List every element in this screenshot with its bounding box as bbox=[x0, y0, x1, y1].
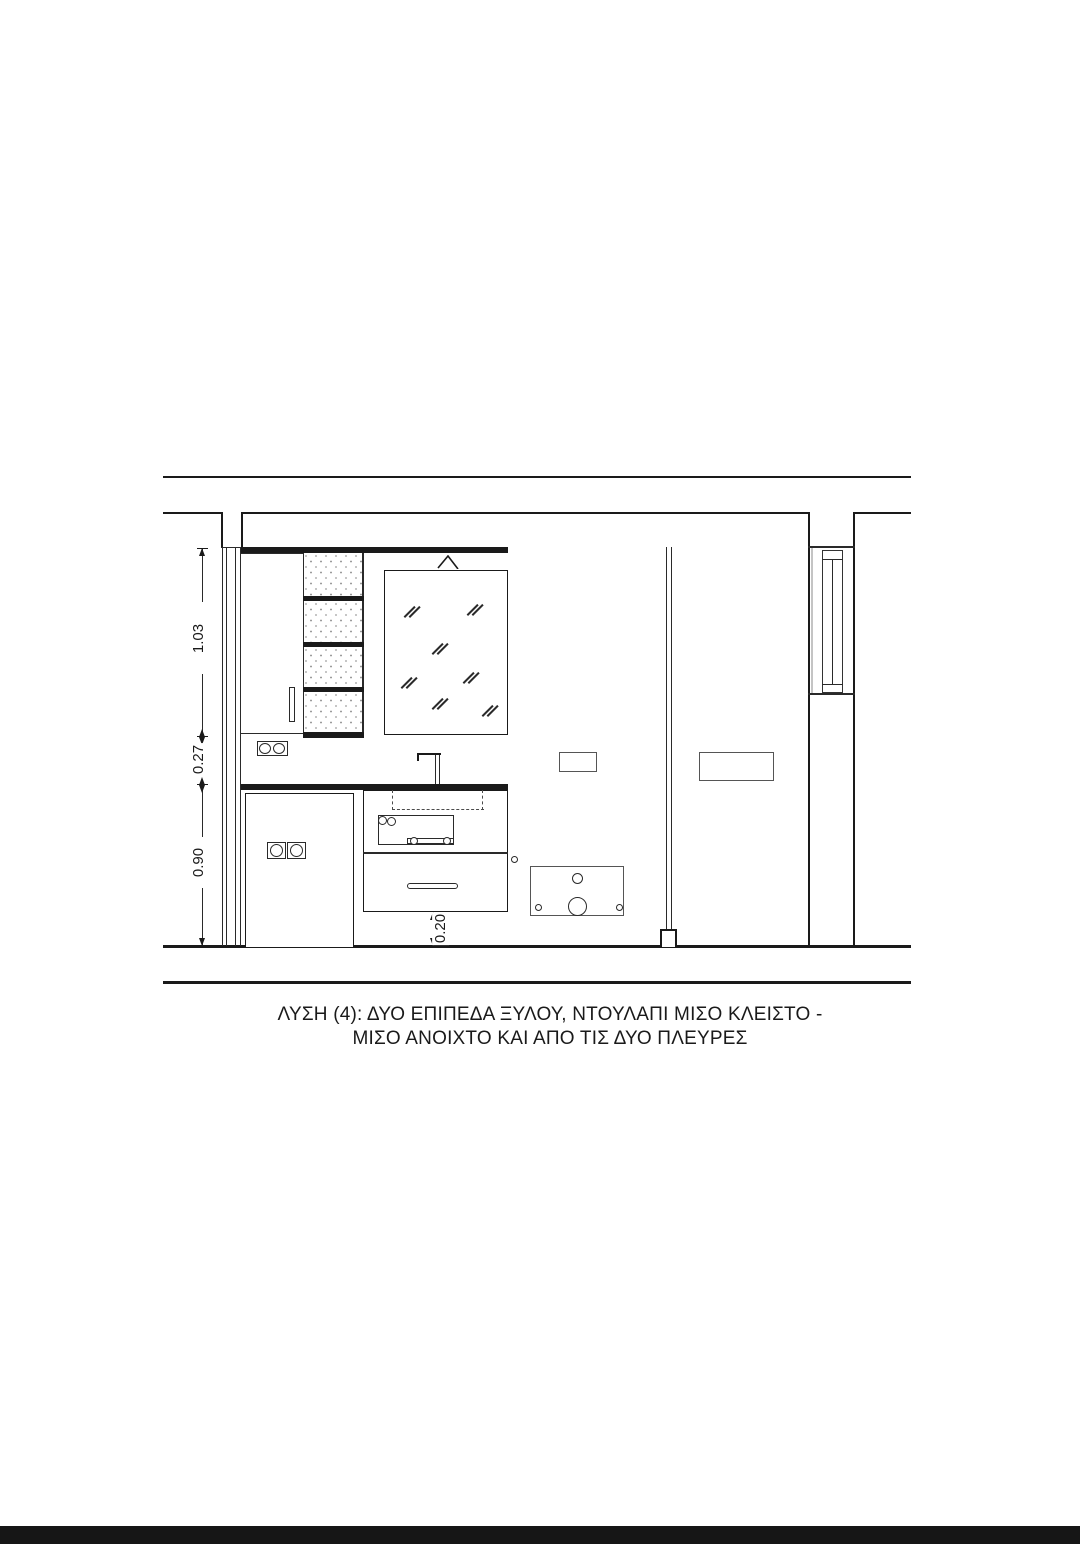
dim-tick-top bbox=[197, 548, 208, 549]
dim-tick-737 bbox=[197, 736, 208, 737]
mirror bbox=[384, 570, 508, 735]
lower-cabinet-door bbox=[245, 793, 354, 948]
dim-arrow-785-down bbox=[199, 785, 205, 793]
shelf-unit-bottom-board bbox=[303, 732, 364, 738]
right-wall-inner-face bbox=[853, 512, 855, 946]
shelf-board-3 bbox=[303, 687, 364, 692]
window-frame-bottom-rail bbox=[822, 684, 843, 685]
socket-circle-right bbox=[290, 844, 303, 857]
dim-label-middle: 0.27 bbox=[190, 743, 207, 776]
dim-label-upper: 1.03 bbox=[190, 622, 207, 655]
sink-bowl-hidden-right bbox=[482, 790, 483, 810]
caption-line-2: ΜΙΣΟ ΑΝΟΙΧΤΟ ΚΑΙ ΑΠΟ ΤΙΣ ΔΥΟ ΠΛΕΥΡΕΣ bbox=[240, 1027, 860, 1051]
wall-box-large bbox=[699, 752, 774, 781]
left-lintel-outer-edge bbox=[221, 512, 223, 548]
wall-box-small bbox=[559, 752, 597, 772]
switch-knob-right bbox=[273, 743, 285, 754]
ceiling-line-middle bbox=[242, 512, 809, 514]
socket-outlet-right bbox=[287, 842, 306, 859]
dim-tick-bottom bbox=[197, 945, 208, 946]
towel-rail-knob-right bbox=[443, 837, 451, 845]
dim-label-toe-kick: 0.20 bbox=[432, 912, 449, 945]
shelf-compartment-2 bbox=[304, 601, 362, 642]
faucet-riser bbox=[435, 755, 440, 785]
mirror-hatch-2 bbox=[465, 602, 487, 618]
shelf-compartment-4 bbox=[304, 692, 362, 732]
left-wall-line-3 bbox=[235, 548, 236, 946]
mirror-hatch-4 bbox=[399, 675, 421, 691]
appliance-foot-right bbox=[616, 904, 623, 911]
mirror-hatch-1 bbox=[402, 604, 424, 620]
glass-partition bbox=[666, 547, 672, 930]
partition-base-block bbox=[660, 929, 677, 947]
sink-bowl-hidden-left bbox=[392, 790, 393, 810]
dim-line-seg-1 bbox=[202, 548, 203, 602]
niche-roll-right bbox=[387, 817, 396, 826]
left-wall-line-1 bbox=[222, 548, 223, 946]
elevation-drawing-page: 1.03 0.27 0.90 bbox=[0, 0, 1080, 1544]
window-niche-shading bbox=[811, 548, 813, 693]
upper-cabinet-door-handle bbox=[289, 687, 295, 722]
dim-tick-785 bbox=[197, 784, 208, 785]
shelf-compartment-3 bbox=[304, 647, 362, 687]
socket-outlet-left bbox=[267, 842, 286, 859]
ceiling-line-right bbox=[854, 512, 911, 514]
sink-bowl-hidden-bottom bbox=[392, 809, 484, 810]
mirror-hatch-3 bbox=[430, 641, 452, 657]
caption-line-1: ΛΥΣΗ (4): ΔΥΟ ΕΠΙΠΕΔΑ ΞΥΛΟΥ, ΝΤΟΥΛΑΠΙ ΜΙ… bbox=[240, 1003, 860, 1027]
niche-roll-left bbox=[378, 816, 387, 825]
ceiling-caret-mark bbox=[436, 555, 460, 569]
ceiling-line-left bbox=[163, 512, 222, 514]
wall-hook bbox=[511, 856, 518, 863]
shelf-board-2 bbox=[303, 642, 364, 647]
socket-circle-left bbox=[270, 844, 283, 857]
shelf-board-1 bbox=[303, 596, 364, 601]
dim-arrow-top bbox=[199, 548, 205, 556]
mirror-hatch-5 bbox=[461, 670, 483, 686]
window-glass-line bbox=[832, 559, 833, 684]
appliance-foot-left bbox=[535, 904, 542, 911]
double-switch-plate bbox=[257, 741, 288, 756]
bottom-viewer-bar bbox=[0, 1526, 1080, 1544]
slab-bottom-line bbox=[163, 981, 911, 984]
appliance-dial-large bbox=[568, 897, 587, 916]
drawer-handle bbox=[407, 883, 458, 889]
towel-rail-knob-left bbox=[410, 837, 418, 845]
switch-knob-left bbox=[259, 743, 271, 754]
vanity-divider bbox=[363, 852, 508, 854]
window-sill-line bbox=[808, 693, 855, 695]
shelf-compartment-1 bbox=[304, 553, 362, 596]
dim-line-seg-2 bbox=[202, 674, 203, 737]
window-niche-top bbox=[808, 546, 855, 548]
appliance-front bbox=[530, 866, 624, 916]
left-wall-line-2 bbox=[226, 548, 227, 946]
dim-label-lower: 0.90 bbox=[190, 846, 207, 879]
drawing-caption: ΛΥΣΗ (4): ΔΥΟ ΕΠΙΠΕΔΑ ΞΥΛΟΥ, ΝΤΟΥΛΑΠΙ ΜΙ… bbox=[240, 1003, 860, 1051]
appliance-dial-small bbox=[572, 873, 583, 884]
left-lintel-inner-edge bbox=[241, 512, 243, 548]
mirror-hatch-7 bbox=[480, 703, 502, 719]
faucet-spout-tip bbox=[417, 753, 419, 761]
right-wall-outer-face bbox=[808, 512, 810, 946]
upper-slab-line bbox=[163, 476, 911, 478]
mirror-hatch-6 bbox=[430, 696, 452, 712]
